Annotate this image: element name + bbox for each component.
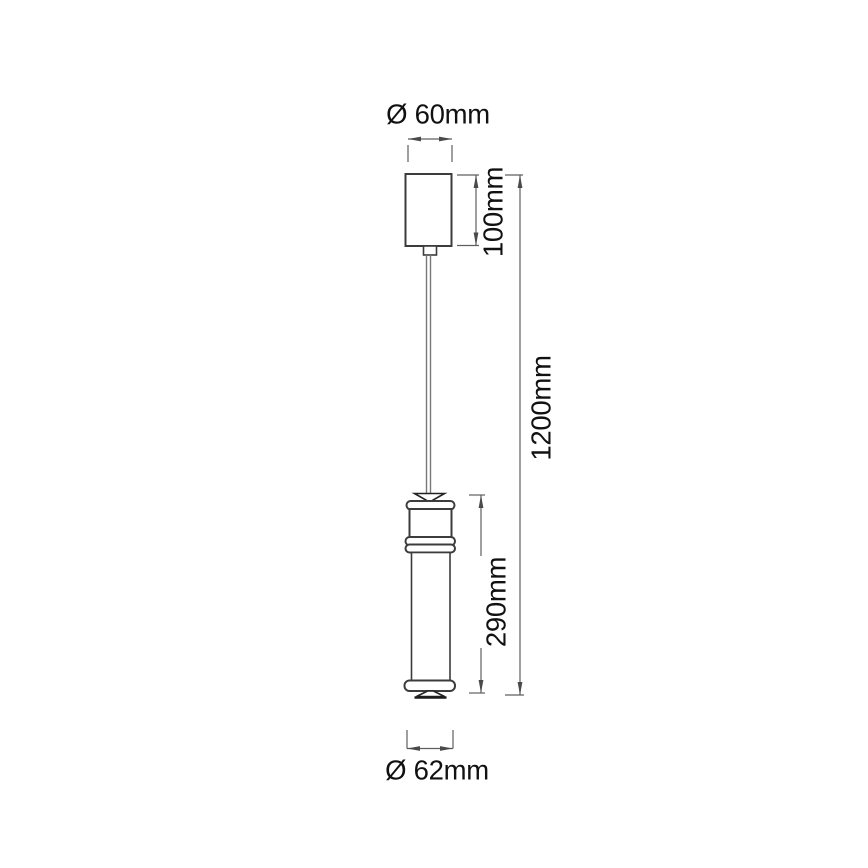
cable-connector [424, 246, 437, 255]
arrow-down-icon [518, 682, 523, 695]
dim-total-height: 1200mm [505, 175, 557, 695]
arrow-right-icon [440, 746, 453, 751]
dim-canopy-diameter: Ø 60mm [386, 99, 490, 162]
dim-label-canopy-diameter: Ø 60mm [386, 99, 490, 130]
lamp-fixture [405, 174, 456, 698]
cable-cone [415, 494, 445, 502]
suspension-cable [427, 255, 431, 494]
lamp-tube [412, 553, 451, 682]
arrow-right-icon [439, 137, 452, 142]
arrow-left-icon [408, 137, 421, 142]
arrow-down-icon [479, 680, 484, 693]
arrow-left-icon [407, 746, 420, 751]
dim-label-lamp-diameter: Ø 62mm [385, 755, 489, 786]
canopy-outline [406, 174, 452, 246]
lamp-upper-body [410, 509, 452, 538]
arrow-up-icon [479, 495, 484, 508]
dim-label-total-height: 1200mm [526, 355, 557, 460]
lamp-bottom-cap [405, 681, 456, 692]
dim-label-lamp-height: 290mm [481, 557, 512, 647]
arrow-up-icon [518, 175, 523, 188]
dim-label-canopy-height: 100mm [478, 167, 509, 257]
dim-lamp-height: 290mm [469, 495, 512, 693]
pendant-lamp-dimension-drawing: Ø 60mm 100mm 1200mm 29 [0, 0, 868, 868]
diagram-page: Ø 60mm 100mm 1200mm 29 [0, 0, 868, 868]
dim-lamp-diameter: Ø 62mm [385, 730, 489, 786]
lamp-rings [406, 537, 456, 553]
dim-canopy-height: 100mm [457, 167, 509, 257]
